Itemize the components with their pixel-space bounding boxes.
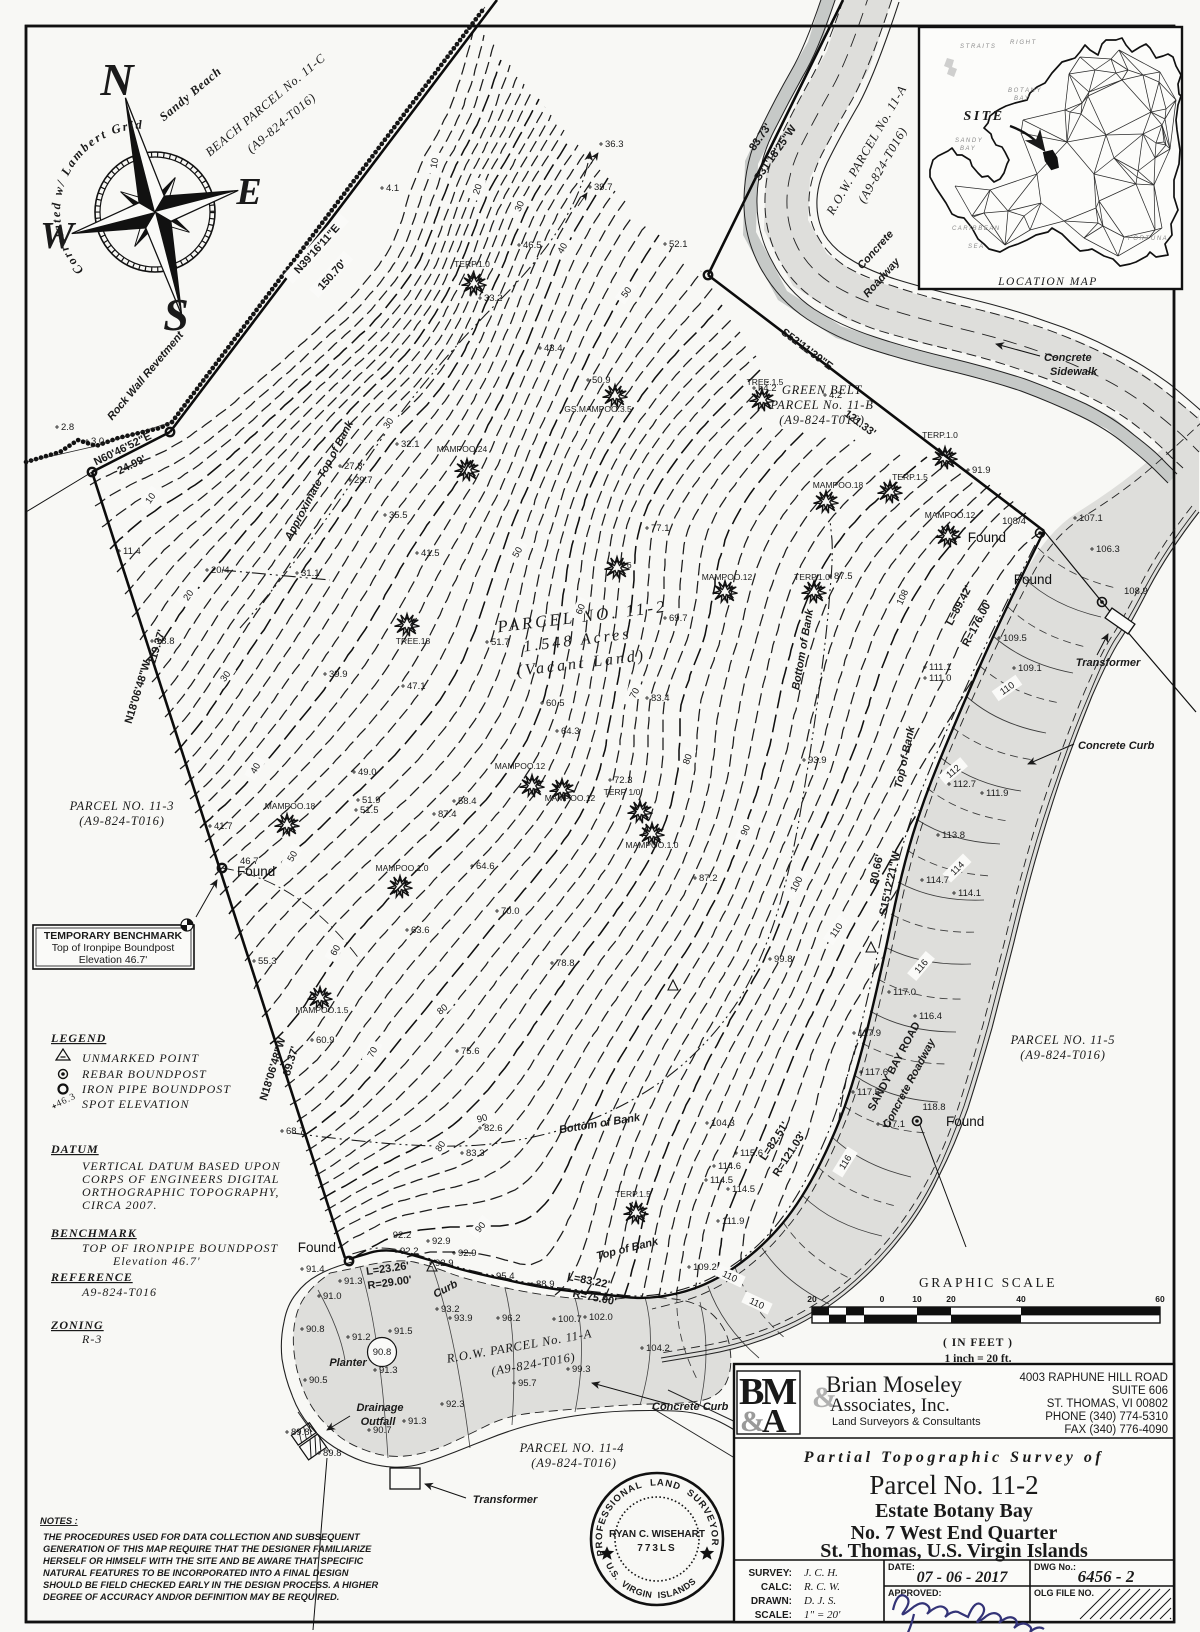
svg-text:43.4: 43.4	[544, 343, 563, 354]
svg-text:46.5: 46.5	[523, 240, 542, 251]
svg-text:117.9: 117.9	[858, 1028, 881, 1039]
svg-text:B A Y: B A Y	[960, 146, 976, 152]
svg-text:90.8: 90.8	[373, 1347, 392, 1358]
svg-text:REBAR BOUNDPOST: REBAR BOUNDPOST	[81, 1067, 207, 1081]
svg-text:111.9: 111.9	[986, 788, 1008, 799]
svg-text:TERP.1.5: TERP.1.5	[892, 472, 928, 482]
svg-text:SUITE 606: SUITE 606	[1112, 1385, 1168, 1397]
svg-text:96.2: 96.2	[502, 1313, 521, 1324]
svg-text:39.9: 39.9	[329, 669, 348, 680]
svg-text:MAMPOO.12: MAMPOO.12	[702, 572, 753, 582]
svg-text:91.3: 91.3	[344, 1276, 363, 1287]
svg-text:FAX (340) 776-4090: FAX (340) 776-4090	[1064, 1424, 1168, 1436]
svg-text:11.4: 11.4	[123, 546, 141, 557]
svg-text:MAMPOO.1.0: MAMPOO.1.0	[626, 840, 679, 850]
svg-text:PHONE (340) 774-5310: PHONE (340) 774-5310	[1045, 1411, 1168, 1423]
svg-text:112.7: 112.7	[953, 779, 976, 790]
svg-text:h4.2: h4.2	[758, 383, 777, 394]
svg-text:SPOT ELEVATION: SPOT ELEVATION	[82, 1097, 189, 1111]
svg-text:33.2: 33.2	[484, 293, 503, 304]
svg-text:41.7: 41.7	[214, 821, 233, 832]
svg-text:Elevation 46.7': Elevation 46.7'	[79, 954, 148, 966]
svg-text:TOP OF IRONPIPE BOUNDPOST: TOP OF IRONPIPE BOUNDPOST	[82, 1241, 279, 1255]
svg-text:NOTES :: NOTES :	[40, 1516, 78, 1526]
svg-text:Transformer: Transformer	[1076, 657, 1141, 669]
svg-text:109.1: 109.1	[1018, 663, 1042, 674]
svg-text:.6: .6	[624, 560, 631, 570]
svg-text:68.7: 68.7	[286, 1126, 305, 1137]
svg-text:90.7: 90.7	[373, 1425, 392, 1436]
svg-text:106.3: 106.3	[1096, 544, 1120, 555]
svg-text:07 - 06 - 2017: 07 - 06 - 2017	[917, 1569, 1009, 1586]
svg-text:4.1: 4.1	[386, 183, 399, 194]
svg-text:Associates, Inc.: Associates, Inc.	[830, 1395, 950, 1416]
svg-text:TERP.1.0: TERP.1.0	[922, 430, 958, 440]
svg-text:S A N D Y: S A N D Y	[955, 138, 983, 144]
svg-text:92.9: 92.9	[458, 1248, 477, 1259]
svg-text:MAMPOO.12: MAMPOO.12	[495, 761, 546, 771]
svg-text:SHOULD BE FIELD CHECKED EARLY: SHOULD BE FIELD CHECKED EARLY IN THE DES…	[43, 1580, 379, 1590]
svg-text:10: 10	[429, 157, 442, 169]
svg-text:27.8: 27.8	[344, 461, 363, 472]
svg-text:115.6: 115.6	[740, 1148, 763, 1159]
svg-text:114.5: 114.5	[710, 1175, 733, 1186]
svg-text:78.8: 78.8	[556, 958, 575, 969]
svg-text:1" = 20': 1" = 20'	[804, 1609, 841, 1621]
svg-text:Parcel No. 11-2: Parcel No. 11-2	[869, 1470, 1038, 1500]
svg-text:91.5: 91.5	[394, 1326, 413, 1337]
svg-text:117.0: 117.0	[893, 987, 916, 998]
svg-text:Sidewalk: Sidewalk	[1050, 366, 1098, 378]
svg-text:Found: Found	[1014, 572, 1052, 587]
svg-text:APPROVED:: APPROVED:	[888, 1588, 942, 1598]
svg-text:SURVEY:: SURVEY:	[748, 1568, 792, 1579]
svg-text:0: 0	[880, 1294, 885, 1304]
svg-text:92.2: 92.2	[393, 1230, 412, 1241]
svg-text:C A R I B B E A N: C A R I B B E A N	[952, 226, 1000, 232]
svg-text:75.6: 75.6	[461, 1046, 480, 1057]
svg-text:4.2: 4.2	[829, 390, 842, 401]
svg-text:91.9: 91.9	[972, 465, 991, 476]
svg-text:DRAWN:: DRAWN:	[751, 1596, 792, 1607]
svg-text:A9-824-T016: A9-824-T016	[81, 1285, 157, 1299]
svg-text:DATUM: DATUM	[50, 1142, 99, 1156]
svg-text:109.2: 109.2	[693, 1262, 717, 1273]
svg-text:GS.MAMPOO.3.5: GS.MAMPOO.3.5	[564, 404, 632, 414]
svg-text:REFERENCE: REFERENCE	[50, 1270, 133, 1284]
svg-text:91.3: 91.3	[379, 1365, 398, 1376]
svg-text:69.7: 69.7	[669, 613, 688, 624]
svg-text:TERP.1.5: TERP.1.5	[615, 1189, 651, 1199]
svg-text:THE PROCEDURES USED FOR DATA C: THE PROCEDURES USED FOR DATA COLLECTION …	[43, 1532, 361, 1542]
svg-text:IRON PIPE BOUNDPOST: IRON PIPE BOUNDPOST	[81, 1082, 231, 1096]
svg-text:( IN FEET ): ( IN FEET )	[943, 1337, 1013, 1349]
svg-text:UNMARKED POINT: UNMARKED POINT	[82, 1051, 199, 1065]
svg-text:HERSELF OR HIMSELF WITH THE SI: HERSELF OR HIMSELF WITH THE SITE AND BE …	[43, 1556, 364, 1566]
svg-text:2.8: 2.8	[61, 422, 74, 433]
svg-text:114.1: 114.1	[958, 888, 981, 899]
svg-text:R-3: R-3	[81, 1332, 102, 1346]
svg-text:CIRCA 2007.: CIRCA 2007.	[82, 1198, 157, 1212]
svg-text:111.0: 111.0	[929, 673, 951, 684]
svg-text:50.9: 50.9	[592, 375, 611, 386]
svg-text:MAMPOO.12: MAMPOO.12	[925, 510, 976, 520]
svg-text:60: 60	[1155, 1294, 1165, 1304]
svg-text:63.6: 63.6	[411, 925, 430, 936]
svg-text:TERP.1.0: TERP.1.0	[454, 259, 490, 269]
svg-text:92.9: 92.9	[432, 1236, 451, 1247]
svg-text:PARCEL NO. 11-3: PARCEL NO. 11-3	[69, 799, 175, 813]
svg-text:100.7: 100.7	[558, 1314, 582, 1325]
svg-text:A: A	[762, 1403, 787, 1440]
svg-text:117.5: 117.5	[857, 1087, 880, 1098]
svg-text:64.3: 64.3	[561, 726, 580, 737]
svg-text:92.9: 92.9	[435, 1258, 454, 1269]
svg-text:111.9: 111.9	[722, 1216, 744, 1227]
svg-text:91.0: 91.0	[323, 1291, 342, 1302]
svg-text:N: N	[99, 54, 135, 105]
svg-text:39.7: 39.7	[594, 182, 613, 193]
svg-text:Partial Topographic Survey of: Partial Topographic Survey of	[803, 1449, 1104, 1466]
svg-text:MAMPOO.24: MAMPOO.24	[437, 444, 488, 454]
svg-text:83.4: 83.4	[651, 693, 670, 704]
svg-text:B O T A N Y: B O T A N Y	[1008, 88, 1041, 94]
svg-text:64.6: 64.6	[476, 861, 495, 872]
svg-text:GRAPHIC SCALE: GRAPHIC SCALE	[919, 1275, 1057, 1290]
svg-text:109.5: 109.5	[1003, 633, 1027, 644]
svg-text:46.7: 46.7	[240, 856, 259, 867]
svg-text:72.3: 72.3	[614, 775, 633, 786]
svg-text:D. J. S.: D. J. S.	[803, 1595, 836, 1607]
svg-text:(A9-824-T016): (A9-824-T016)	[79, 814, 164, 828]
svg-text:VERTICAL DATUM BASED UPON: VERTICAL DATUM BASED UPON	[82, 1159, 281, 1173]
svg-text:114.7: 114.7	[926, 875, 949, 886]
svg-text:Concrete Curb: Concrete Curb	[1078, 740, 1155, 752]
svg-text:LEGEND: LEGEND	[50, 1031, 106, 1045]
svg-text:Top of Ironpipe Boundpost: Top of Ironpipe Boundpost	[52, 942, 175, 954]
svg-text:Planter: Planter	[329, 1357, 367, 1369]
svg-text:Land Surveyors & Consultants: Land Surveyors & Consultants	[832, 1416, 981, 1428]
svg-text:10: 10	[912, 1294, 922, 1304]
svg-text:CALC:: CALC:	[761, 1582, 792, 1593]
svg-text:70.0: 70.0	[501, 906, 520, 917]
svg-text:89.8: 89.8	[291, 1427, 310, 1438]
svg-text:35.5: 35.5	[389, 510, 408, 521]
svg-text:ZONING: ZONING	[50, 1318, 104, 1332]
svg-text:Elevation 46.7': Elevation 46.7'	[112, 1254, 201, 1268]
svg-text:47.1: 47.1	[407, 681, 426, 692]
svg-text:20: 20	[807, 1294, 817, 1304]
svg-text:20: 20	[946, 1294, 956, 1304]
svg-text:TERP 1/0: TERP 1/0	[604, 787, 641, 797]
svg-text:32.1: 32.1	[401, 439, 420, 450]
svg-text:104.3: 104.3	[711, 1118, 735, 1129]
svg-text:DWG No.:: DWG No.:	[1034, 1562, 1076, 1572]
svg-text:89.8: 89.8	[323, 1448, 342, 1459]
svg-text:(A9-824-T016): (A9-824-T016)	[531, 1456, 616, 1470]
svg-text:GREEN BELT: GREEN BELT	[782, 383, 863, 397]
svg-text:93.9: 93.9	[454, 1313, 473, 1324]
svg-text:Estate Botany Bay: Estate Botany Bay	[875, 1500, 1033, 1522]
svg-text:87.4: 87.4	[438, 809, 457, 820]
svg-text:51.5: 51.5	[360, 805, 379, 816]
svg-text:RYAN C. WISEHART: RYAN C. WISEHART	[609, 1529, 705, 1540]
svg-text:4003 RAPHUNE HILL ROAD: 4003 RAPHUNE HILL ROAD	[1020, 1372, 1169, 1384]
svg-text:95.4: 95.4	[496, 1271, 515, 1282]
svg-text:F O R T U N A: F O R T U N A	[1128, 236, 1167, 242]
svg-text:114.5: 114.5	[732, 1184, 755, 1195]
svg-text:St. Thomas, U.S. Virgin Island: St. Thomas, U.S. Virgin Islands	[820, 1540, 1088, 1562]
svg-text:118.8: 118.8	[922, 1102, 945, 1113]
svg-text:Drainage: Drainage	[356, 1402, 403, 1414]
svg-text:41.5: 41.5	[421, 548, 440, 559]
svg-text:117.6: 117.6	[865, 1067, 888, 1078]
svg-text:36.3: 36.3	[605, 139, 624, 150]
svg-text:TEMPORARY BENCHMARK: TEMPORARY BENCHMARK	[44, 930, 183, 942]
svg-text:87.5: 87.5	[834, 571, 853, 582]
svg-text:TERP.1.0: TERP.1.0	[794, 572, 830, 582]
svg-text:114.6: 114.6	[718, 1161, 741, 1172]
svg-text:49.0: 49.0	[358, 767, 377, 778]
svg-text:CORPS OF ENGINEERS DIGITAL: CORPS OF ENGINEERS DIGITAL	[82, 1172, 279, 1186]
svg-text:92.2: 92.2	[400, 1246, 419, 1257]
svg-text:J. C. H.: J. C. H.	[804, 1567, 838, 1579]
svg-text:SITE: SITE	[963, 109, 1004, 124]
svg-text:DEGREE OF ACCURACY AND/OR DEFI: DEGREE OF ACCURACY AND/OR DEFINITION MAY…	[43, 1592, 339, 1602]
svg-text:R I G H T: R I G H T	[1010, 40, 1037, 46]
svg-text:102.0: 102.0	[589, 1312, 613, 1323]
svg-text:MAMPOO.1.5: MAMPOO.1.5	[296, 1005, 349, 1015]
svg-text:91.3: 91.3	[408, 1416, 427, 1427]
svg-text:77.1: 77.1	[651, 523, 670, 534]
svg-text:113.8: 113.8	[942, 830, 965, 841]
svg-text:NATURAL FEATURES TO BE INCORPO: NATURAL FEATURES TO BE INCORPORATED INTO…	[43, 1568, 349, 1578]
svg-text:90.5: 90.5	[309, 1375, 328, 1386]
svg-text:OLG FILE NO.: OLG FILE NO.	[1034, 1588, 1094, 1598]
svg-text:40: 40	[1016, 1294, 1026, 1304]
svg-text:99.8: 99.8	[774, 954, 793, 965]
svg-text:87.2: 87.2	[699, 873, 718, 884]
svg-text:Transformer: Transformer	[473, 1494, 538, 1506]
svg-text:Found: Found	[968, 530, 1006, 545]
svg-text:108/4: 108/4	[1002, 516, 1026, 527]
svg-text:Found: Found	[298, 1240, 336, 1255]
svg-text:60.5: 60.5	[546, 698, 565, 709]
svg-text:Concrete: Concrete	[1044, 352, 1092, 364]
svg-text:SCALE:: SCALE:	[755, 1610, 792, 1621]
svg-text:S E A: S E A	[968, 244, 983, 250]
svg-text:83.3: 83.3	[466, 1148, 485, 1159]
svg-text:(A9-824-T016): (A9-824-T016)	[1020, 1048, 1105, 1062]
svg-text:52.1: 52.1	[669, 239, 688, 250]
svg-text:R. C. W.: R. C. W.	[803, 1581, 840, 1593]
svg-text:82.6: 82.6	[484, 1123, 503, 1134]
svg-text:S T R A I T S: S T R A I T S	[960, 44, 995, 50]
svg-text:111.1: 111.1	[929, 662, 951, 673]
svg-text:29.7: 29.7	[354, 475, 373, 486]
svg-text:PARCEL NO. 11-4: PARCEL NO. 11-4	[519, 1441, 625, 1455]
svg-text:91.4: 91.4	[306, 1264, 325, 1275]
svg-text:107.1: 107.1	[1079, 513, 1103, 524]
svg-text:116.4: 116.4	[919, 1011, 942, 1022]
svg-text:104.2: 104.2	[646, 1343, 670, 1354]
svg-text:ST. THOMAS, VI 00802: ST. THOMAS, VI 00802	[1047, 1398, 1168, 1410]
svg-text:MAMPOO.18: MAMPOO.18	[813, 480, 864, 490]
svg-text:88.9: 88.9	[536, 1279, 555, 1290]
svg-text:TREE.18: TREE.18	[396, 636, 431, 646]
svg-text:58.4: 58.4	[458, 796, 477, 807]
svg-text:LOCATION MAP: LOCATION MAP	[997, 276, 1098, 288]
svg-text:DATE:: DATE:	[888, 1562, 915, 1572]
svg-text:60.9: 60.9	[316, 1035, 335, 1046]
svg-text:PARCEL NO. 11-5: PARCEL NO. 11-5	[1010, 1033, 1116, 1047]
svg-text:E: E	[235, 171, 261, 213]
svg-text:93.9: 93.9	[808, 755, 827, 766]
svg-text:108.9: 108.9	[1124, 586, 1148, 597]
svg-text:ORTHOGRAPHIC TOPOGRAPHY,: ORTHOGRAPHIC TOPOGRAPHY,	[82, 1185, 279, 1199]
svg-text:Found: Found	[946, 1114, 984, 1129]
svg-text:(A9-824-T016): (A9-824-T016)	[779, 413, 864, 427]
svg-text:Brian Moseley: Brian Moseley	[826, 1372, 963, 1397]
svg-text:GENERATION OF THIS MAP REQUIRE: GENERATION OF THIS MAP REQUIRE THAT THE …	[43, 1544, 372, 1554]
svg-text:55.3: 55.3	[258, 956, 277, 967]
svg-text:3.0: 3.0	[91, 436, 104, 447]
svg-text:773LS: 773LS	[637, 1543, 676, 1554]
svg-text:20/4: 20/4	[211, 565, 230, 576]
svg-text:MAMPOO.1.0: MAMPOO.1.0	[376, 863, 429, 873]
svg-text:18.8: 18.8	[156, 636, 175, 647]
svg-text:6456 - 2: 6456 - 2	[1078, 1567, 1135, 1586]
svg-text:S: S	[163, 289, 189, 340]
svg-text:B A Y: B A Y	[1014, 96, 1030, 102]
svg-text:51.7: 51.7	[491, 637, 510, 648]
svg-text:BENCHMARK: BENCHMARK	[50, 1226, 137, 1240]
svg-text:92.3: 92.3	[446, 1399, 465, 1410]
svg-text:PARCEL No. 11-B: PARCEL No. 11-B	[769, 398, 873, 412]
svg-text:117.1: 117.1	[882, 1119, 905, 1130]
svg-text:91.2: 91.2	[352, 1332, 371, 1343]
svg-text:MAMPOO.12: MAMPOO.12	[545, 793, 596, 803]
svg-text:99.3: 99.3	[572, 1364, 591, 1375]
svg-text:95.7: 95.7	[518, 1378, 537, 1389]
svg-text:MAMPOO.18: MAMPOO.18	[265, 801, 316, 811]
svg-text:31.1: 31.1	[301, 568, 320, 579]
svg-text:90.8: 90.8	[306, 1324, 325, 1335]
